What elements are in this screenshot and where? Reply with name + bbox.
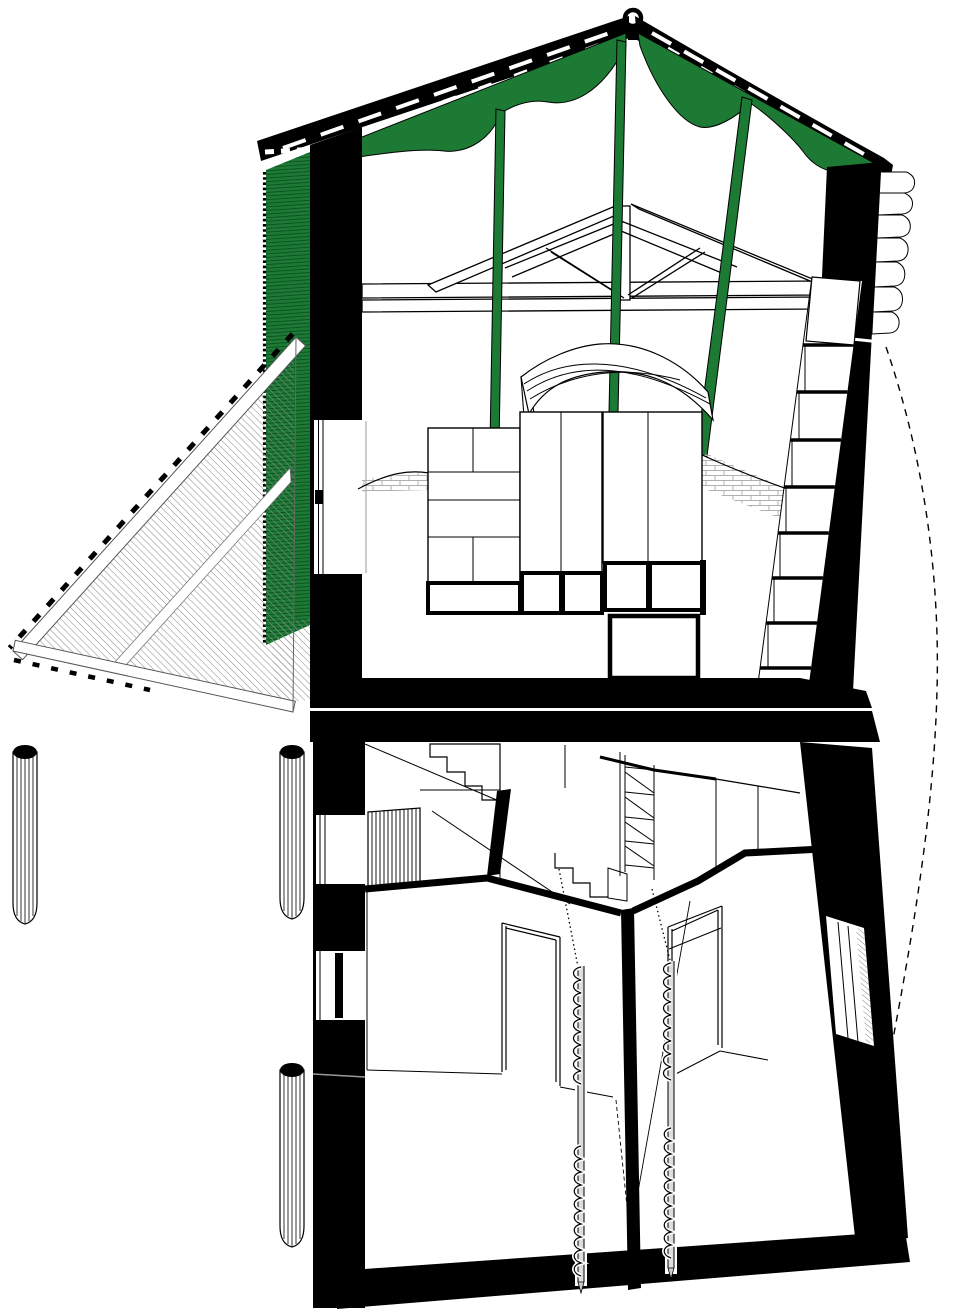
- architectural-section-drawing: [0, 0, 960, 1315]
- column-cap: [280, 745, 304, 759]
- upper-left-wall: [310, 127, 362, 680]
- upper-left-window: [314, 420, 366, 574]
- round-column-2: [280, 745, 304, 919]
- column-cap: [13, 745, 37, 759]
- lower-left-window-2: [316, 951, 365, 1020]
- section-canvas: [0, 0, 960, 1315]
- slat-screen: [368, 808, 420, 888]
- round-column-3: [280, 1063, 304, 1247]
- screw-pile-2: [664, 961, 678, 1279]
- stair-landing: [806, 277, 860, 345]
- lower-left-window-1: [316, 815, 365, 884]
- floor-slab: [310, 678, 880, 742]
- floor-cabinet: [610, 616, 698, 678]
- screw-pile-1: [574, 966, 588, 1293]
- column-cap: [280, 1063, 304, 1077]
- round-column-1: [13, 745, 37, 924]
